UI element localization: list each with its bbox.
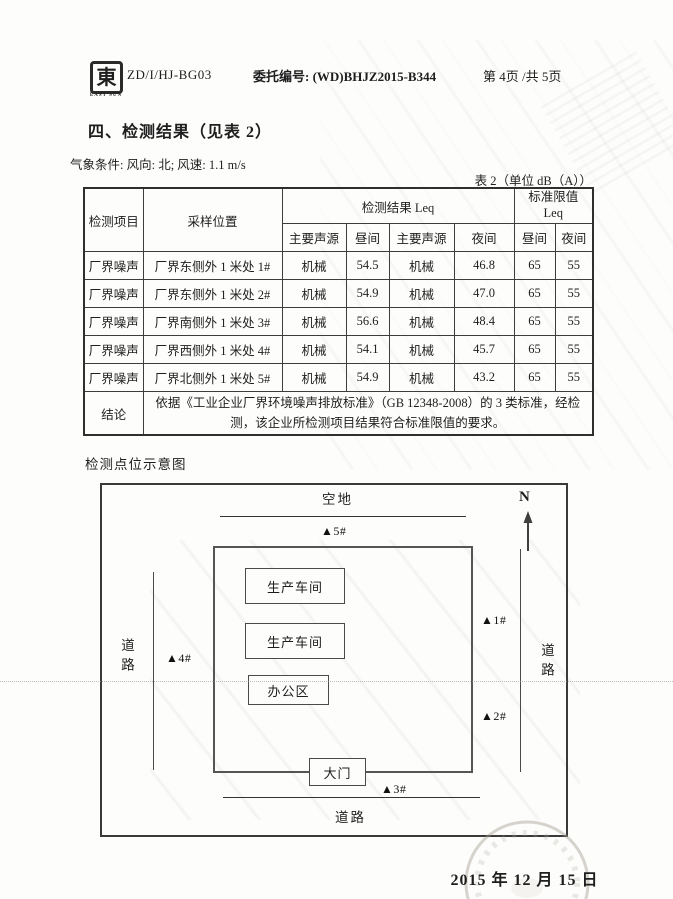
limit-night-cell: 55	[555, 336, 593, 364]
limit-night-cell: 55	[555, 252, 593, 280]
table-row: 厂界噪声 厂界西侧外 1 米处 4# 机械 54.1 机械 45.7 65 55	[84, 336, 593, 364]
limit-day-cell: 65	[514, 252, 555, 280]
item-cell: 厂界噪声	[84, 364, 143, 392]
north-label: N	[519, 489, 530, 506]
open-space-label: 空地	[322, 488, 353, 508]
results-table: 检测项目 采样位置 检测结果 Leq 标准限值 Leq 主要声源 昼间 主要声源…	[83, 187, 594, 436]
day-value-cell: 54.9	[346, 364, 389, 392]
subheader-limit-night: 夜间	[555, 224, 593, 252]
limit-night-cell: 55	[555, 364, 593, 392]
workshop-1-box: 生产车间	[245, 568, 345, 604]
night-source-cell: 机械	[389, 336, 454, 364]
subheader-limit-day: 昼间	[514, 224, 555, 252]
location-cell: 厂界南侧外 1 米处 3#	[143, 308, 282, 336]
day-source-cell: 机械	[282, 280, 346, 308]
limit-night-cell: 55	[555, 280, 593, 308]
day-value-cell: 54.1	[346, 336, 389, 364]
road-bottom-label: 道路	[335, 806, 366, 826]
conclusion-label-cell: 结论	[84, 392, 143, 436]
commission-number: 委托编号: (WD)BHJZ2015-B344	[253, 66, 436, 85]
north-arrow-icon	[521, 511, 535, 551]
day-source-cell: 机械	[282, 364, 346, 392]
location-cell: 厂界东侧外 1 米处 1#	[143, 252, 282, 280]
scanned-report-page: 東 EAST SUN ZD/I/HJ-BG03 委托编号: (WD)BHJZ20…	[0, 0, 673, 899]
table-row: 厂界噪声 厂界东侧外 1 米处 1# 机械 54.5 机械 46.8 65 55	[84, 252, 593, 280]
gate-box: 大门	[309, 758, 366, 786]
section-title: 四、检测结果（见表 2）	[88, 118, 272, 142]
table-row: 厂界噪声 厂界北侧外 1 米处 5# 机械 54.9 机械 43.2 65 55	[84, 364, 593, 392]
item-cell: 厂界噪声	[84, 252, 143, 280]
page-indicator: 第 4页 /共 5页	[483, 66, 561, 85]
night-value-cell: 45.7	[454, 336, 514, 364]
scan-fold-line	[0, 681, 673, 682]
item-cell: 厂界噪声	[84, 308, 143, 336]
location-cell: 厂界东侧外 1 米处 2#	[143, 280, 282, 308]
company-logo: 東	[90, 61, 123, 94]
day-value-cell: 54.9	[346, 280, 389, 308]
subheader-night: 夜间	[454, 224, 514, 252]
header-item: 检测项目	[84, 188, 143, 252]
day-source-cell: 机械	[282, 336, 346, 364]
header-limit-group: 标准限值 Leq	[514, 188, 593, 224]
limit-night-cell: 55	[555, 308, 593, 336]
night-source-cell: 机械	[389, 252, 454, 280]
day-value-cell: 56.6	[346, 308, 389, 336]
day-source-cell: 机械	[282, 252, 346, 280]
limit-day-cell: 65	[514, 336, 555, 364]
night-source-cell: 机械	[389, 364, 454, 392]
site-diagram: 空地 N ▲5# 生产车间 生产车间 办公区 大门 ▲1# ▲2# ▲3# ▲4…	[100, 483, 568, 837]
header-result-group: 检测结果 Leq	[282, 188, 514, 224]
road-right-label: 道路	[536, 643, 556, 682]
monitoring-point-2: ▲2#	[481, 709, 506, 724]
night-source-cell: 机械	[389, 308, 454, 336]
road-bottom-line	[223, 797, 480, 798]
road-left-label: 道路	[116, 638, 136, 677]
night-value-cell: 43.2	[454, 364, 514, 392]
limit-day-cell: 65	[514, 280, 555, 308]
office-box: 办公区	[248, 675, 329, 705]
night-value-cell: 47.0	[454, 280, 514, 308]
road-left-line	[153, 572, 154, 770]
location-cell: 厂界北侧外 1 米处 5#	[143, 364, 282, 392]
road-right-line	[520, 549, 521, 772]
open-space-line	[220, 516, 466, 517]
day-source-cell: 机械	[282, 308, 346, 336]
monitoring-point-1: ▲1#	[481, 613, 506, 628]
table-row: 厂界噪声 厂界东侧外 1 米处 2# 机械 54.9 机械 47.0 65 55	[84, 280, 593, 308]
workshop-2-box: 生产车间	[245, 623, 345, 659]
logo-glyph: 東	[97, 68, 117, 88]
monitoring-point-3: ▲3#	[381, 782, 406, 797]
day-value-cell: 54.5	[346, 252, 389, 280]
night-source-cell: 机械	[389, 280, 454, 308]
subheader-night-source: 主要声源	[389, 224, 454, 252]
report-date: 2015 年 12 月 15 日	[437, 866, 612, 890]
limit-day-cell: 65	[514, 364, 555, 392]
item-cell: 厂界噪声	[84, 280, 143, 308]
monitoring-point-4: ▲4#	[166, 651, 191, 666]
item-cell: 厂界噪声	[84, 336, 143, 364]
header-location: 采样位置	[143, 188, 282, 252]
table-row: 厂界噪声 厂界南侧外 1 米处 3# 机械 56.6 机械 48.4 65 55	[84, 308, 593, 336]
monitoring-point-5: ▲5#	[321, 524, 346, 539]
diagram-title: 检测点位示意图	[85, 453, 187, 473]
limit-day-cell: 65	[514, 308, 555, 336]
night-value-cell: 46.8	[454, 252, 514, 280]
subheader-day: 昼间	[346, 224, 389, 252]
logo-caption: EAST SUN	[86, 93, 126, 98]
document-code: ZD/I/HJ-BG03	[127, 67, 212, 83]
subheader-day-source: 主要声源	[282, 224, 346, 252]
night-value-cell: 48.4	[454, 308, 514, 336]
conclusion-text-cell: 依据《工业企业厂界环境噪声排放标准》（GB 12348-2008）的 3 类标准…	[143, 392, 593, 436]
location-cell: 厂界西侧外 1 米处 4#	[143, 336, 282, 364]
